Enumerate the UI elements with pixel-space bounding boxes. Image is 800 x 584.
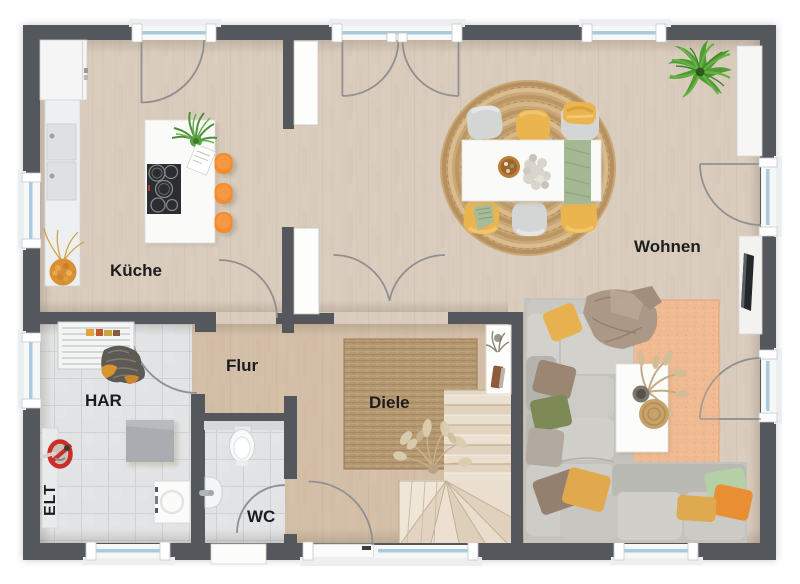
svg-text:ELT: ELT — [42, 484, 59, 516]
svg-text:Wohnen: Wohnen — [634, 237, 701, 256]
svg-text:WC: WC — [247, 507, 275, 526]
svg-text:Flur: Flur — [226, 356, 258, 375]
svg-text:Diele: Diele — [369, 393, 410, 412]
svg-text:Küche: Küche — [110, 261, 162, 280]
svg-text:HAR: HAR — [85, 391, 122, 410]
